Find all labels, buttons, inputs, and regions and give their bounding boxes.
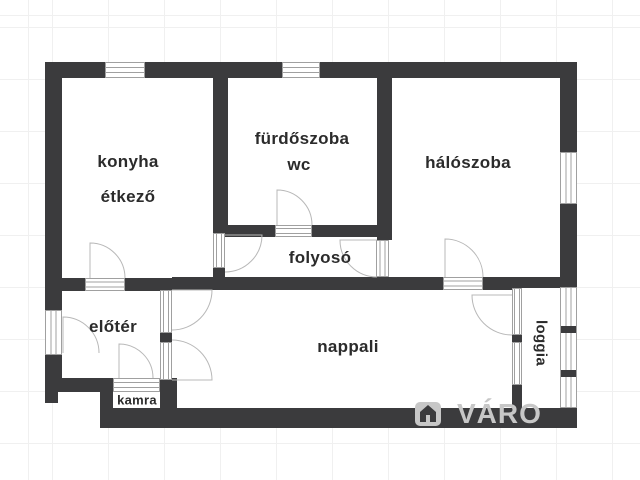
room-label-folyoso: folyosó [289,248,352,268]
room-label-loggia: loggia [533,320,550,366]
wall-segment [512,335,522,342]
room-label-eloter: előtér [89,317,137,337]
wall-segment [213,78,228,225]
wall-segment [312,225,392,237]
room-label-haloszoba: hálószoba [425,153,511,173]
door-foyer-living-upper [160,290,172,333]
watermark: VÁRO [402,398,580,429]
window-loggia-right [560,287,577,408]
wall-segment [560,62,577,152]
wall-segment [512,277,560,288]
wall-segment [561,326,576,333]
door-foyer-living-lower [160,342,172,380]
door-bathroom [275,225,312,237]
door-living-bedroom [443,277,483,290]
room-label-wc: wc [287,155,310,175]
room-label-etkezo: étkező [101,187,156,207]
room-label-konyha: konyha [97,152,158,172]
wall-segment [45,278,85,291]
wall-segment [561,370,576,377]
floorplan-canvas: konyha étkező fürdőszoba wc hálószoba fo… [0,0,640,480]
wall-segment [377,78,392,240]
window-kitchen-top [105,62,145,78]
door-kitchen-hall [213,233,225,268]
wall-segment [45,392,58,403]
wall-segment [320,62,577,78]
house-logo-icon [415,401,441,426]
entry-door-left [45,310,62,355]
wall-segment [145,62,282,78]
wall-segment [172,277,443,290]
watermark-text: VÁRO [457,400,542,428]
wall-segment [560,204,577,288]
room-label-nappali: nappali [317,337,379,357]
door-kitchen-foyer [85,278,125,291]
wall-segment [160,378,177,408]
door-living-loggia [512,288,522,335]
wall-segment [160,333,172,342]
window-bathroom-top [282,62,320,78]
window-bedroom-right [560,152,577,204]
wall-segment [45,62,62,310]
window-living-loggia [512,342,522,385]
room-label-kamra: kamra [117,393,157,408]
wall-segment [100,390,113,408]
door-bedroom-hall [376,240,389,277]
room-label-furdoszoba: fürdőszoba [255,129,350,149]
door-pantry [113,378,160,392]
